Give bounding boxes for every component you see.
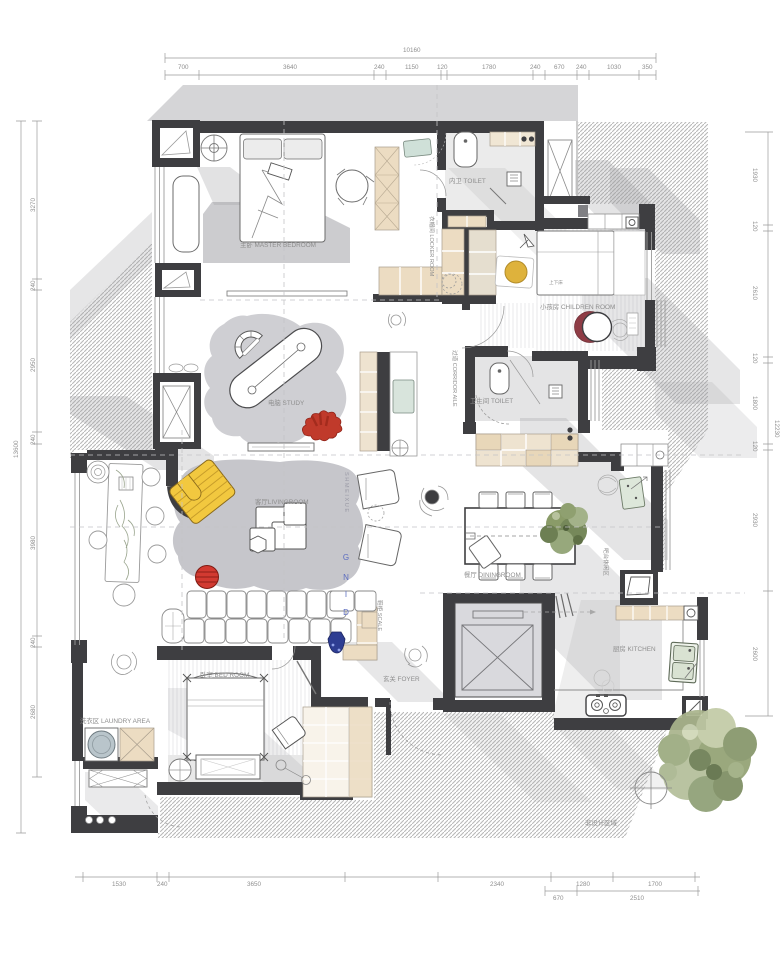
svg-text:3270: 3270 [30,197,37,212]
svg-text:10160: 10160 [403,47,421,54]
svg-text:鞋柜 SCALE: 鞋柜 SCALE [376,600,384,631]
svg-text:3980: 3980 [30,535,37,550]
svg-text:D: D [343,608,349,617]
svg-text:衣帽间 LOCKER ROOM: 衣帽间 LOCKER ROOM [428,216,436,277]
svg-text:主卧 MASTER BEDROOM: 主卧 MASTER BEDROOM [240,240,316,249]
svg-text:2510: 2510 [630,895,645,902]
svg-text:S H M E I X U E: S H M E I X U E [343,472,349,512]
svg-text:2680: 2680 [30,704,37,719]
svg-text:120: 120 [751,221,758,232]
svg-text:3640: 3640 [283,64,298,71]
svg-text:700: 700 [178,64,189,71]
svg-text:吧台休闲区: 吧台休闲区 [602,548,610,576]
svg-text:I: I [345,590,347,599]
svg-text:670: 670 [554,64,565,71]
svg-text:3650: 3650 [247,881,262,888]
svg-text:1030: 1030 [607,64,622,71]
svg-text:240: 240 [157,881,168,888]
svg-text:240: 240 [30,637,37,648]
svg-text:内卫 TOILET: 内卫 TOILET [449,176,486,185]
svg-text:1780: 1780 [482,64,497,71]
svg-text:G: G [343,553,349,562]
svg-text:120: 120 [751,353,758,364]
svg-text:非设计区域: 非设计区域 [585,818,618,827]
svg-text:1930: 1930 [751,168,758,183]
svg-text:小孩房 CHILDREN ROOM: 小孩房 CHILDREN ROOM [540,302,615,311]
svg-text:670: 670 [553,895,564,902]
svg-text:240: 240 [530,64,541,71]
svg-text:240: 240 [374,64,385,71]
svg-text:玄关 FOYER: 玄关 FOYER [383,674,420,683]
svg-text:12230: 12230 [773,420,780,438]
svg-text:120: 120 [751,441,758,452]
svg-text:2950: 2950 [30,357,37,372]
svg-text:客厅LIVINGROOM: 客厅LIVINGROOM [255,497,309,506]
svg-text:卫生间 TOILET: 卫生间 TOILET [470,396,513,405]
svg-text:240: 240 [30,434,37,445]
svg-text:350: 350 [642,64,653,71]
svg-text:1150: 1150 [405,64,419,71]
svg-text:13600: 13600 [13,440,20,458]
svg-text:120: 120 [437,64,448,71]
svg-text:2340: 2340 [490,881,505,888]
svg-text:240: 240 [576,64,587,71]
svg-text:1530: 1530 [112,881,127,888]
svg-text:2610: 2610 [751,286,758,301]
svg-text:1280: 1280 [576,881,591,888]
svg-text:厨房 KITCHEN: 厨房 KITCHEN [613,644,656,653]
svg-text:洗衣区 LAUNDRY AREA: 洗衣区 LAUNDRY AREA [80,716,151,725]
svg-text:卧室 BED ROOM: 卧室 BED ROOM [200,670,249,679]
svg-text:上下床: 上下床 [549,279,563,286]
svg-text:电脑 STUDY: 电脑 STUDY [268,398,305,407]
svg-text:N: N [343,573,349,582]
svg-text:2930: 2930 [751,513,758,528]
svg-text:过道 CORRIDOR AILE: 过道 CORRIDOR AILE [451,350,459,407]
svg-text:1800: 1800 [751,396,758,411]
svg-text:餐厅 DININGROOM: 餐厅 DININGROOM [464,570,521,579]
svg-text:240: 240 [30,280,37,291]
svg-text:1700: 1700 [648,881,663,888]
svg-text:2600: 2600 [751,647,758,662]
